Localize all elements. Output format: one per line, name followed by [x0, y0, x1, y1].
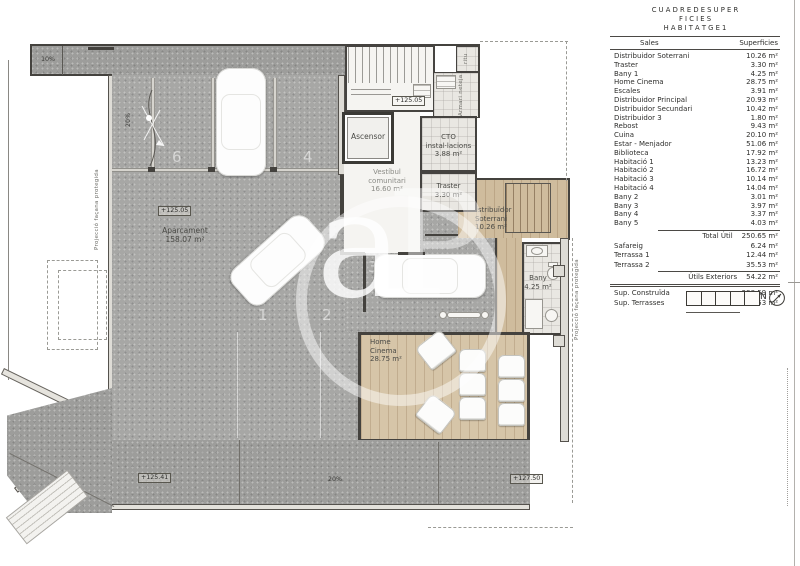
floorplan-sheet: 10% 20% [0, 0, 800, 566]
label-line: 4.25 m² [520, 283, 556, 292]
row-value: 10.42 m² [746, 105, 778, 113]
row-value: 13.23 m² [746, 158, 778, 166]
row-value: 51.06 m² [746, 140, 778, 148]
cinema-chair [459, 397, 486, 420]
slope-label-ramp: 20% [126, 110, 133, 130]
scale-cell [716, 292, 731, 305]
row-label: Bany 4 [614, 210, 638, 218]
bay-line [237, 332, 238, 438]
watermark-logo: aP [292, 170, 492, 390]
table-row: Distribuidor Secundari 10.42 m² [610, 105, 780, 114]
table-row: Bany 5 4.03 m² [610, 219, 780, 228]
total-value: 250.65 m² [742, 232, 778, 242]
projection-line [480, 41, 568, 42]
wall [478, 44, 480, 118]
row-value: 3.97 m² [751, 202, 778, 210]
row-value: 20.10 m² [746, 131, 778, 139]
terrace-marker [553, 335, 565, 347]
slope-label-entry: 10% [36, 56, 60, 63]
label-line: Projecció façana [574, 290, 580, 340]
driveway-entry [30, 46, 345, 75]
row-label: Habitació 4 [614, 184, 654, 192]
divider [610, 284, 780, 285]
label-line: Bany [520, 274, 556, 283]
table-row: Habitació 4 14.04 m² [610, 184, 780, 193]
car-space5 [216, 68, 266, 176]
row-value: 3.01 m² [751, 193, 778, 201]
label-line: 158.07 m² [148, 235, 222, 244]
row-value: 20.93 m² [746, 96, 778, 104]
level-marker-parking: +125.05 [158, 206, 191, 216]
row-value: 3.37 m² [751, 210, 778, 218]
label-line: 3.88 m² [422, 150, 475, 159]
fine-print-microtext [787, 368, 789, 506]
table-title: F I C I E S [610, 15, 780, 24]
level-marker-terrace-high: +127.50 [510, 474, 543, 484]
shower-drain [545, 309, 558, 322]
terrace-edge [48, 504, 530, 510]
space-number: 4 [303, 148, 313, 166]
divider [686, 312, 740, 313]
table-row: Cuina 20.10 m² [610, 131, 780, 140]
row-value: 3.91 m² [751, 87, 778, 95]
exterior-rows: Safareig 6.24 m² Terrassa 1 12.44 m² Ter… [610, 242, 780, 271]
row-label: Bany 1 [614, 70, 638, 78]
total-util-row: Total Útil 250.65 m² [610, 231, 780, 242]
space-number: 6 [172, 148, 182, 166]
label-line: CTO [422, 133, 475, 142]
row-value: 10.26 m² [746, 52, 778, 60]
row-label: Distribuidor 3 [614, 114, 662, 122]
row-label: Estar - Menjador [614, 140, 672, 148]
row-value: 17.92 m² [746, 149, 778, 157]
stairs-treads [348, 47, 432, 83]
row-value: 10.14 m² [746, 175, 778, 183]
sheet-edge-tick [788, 282, 800, 283]
scale-bar [686, 291, 760, 306]
scale-cell [745, 292, 759, 305]
table-row: Habitació 1 13.23 m² [610, 158, 780, 167]
label-projeccio-right: Projecció façana protegida [574, 268, 581, 340]
table-row: Bany 3 3.97 m² [610, 202, 780, 211]
table-title: C U A D R E D E S U P E R [610, 6, 780, 15]
row-label: Biblioteca [614, 149, 649, 157]
row-value: 3.30 m² [751, 61, 778, 69]
total-value: 54.22 m² [746, 273, 778, 283]
row-value: 14.04 m² [746, 184, 778, 192]
table-row: Terrassa 1 12.44 m² [610, 251, 780, 261]
row-label: Habitació 1 [614, 158, 654, 166]
watermark-letter-p: P [386, 159, 468, 331]
total-label: Total Útil [702, 232, 732, 242]
garage-gate [88, 47, 114, 50]
row-value: 4.03 m² [751, 219, 778, 227]
projection-line [428, 527, 573, 528]
table-row: Biblioteca 17.92 m² [610, 149, 780, 158]
table-row: Distribuidor Soterrani 10.26 m² [610, 52, 780, 61]
level-marker-stairs: +125.05 [392, 96, 425, 106]
car-roof [221, 94, 261, 150]
cinema-chair [498, 403, 525, 426]
level-marker-terrace-low: +125.41 [138, 473, 171, 483]
row-label: Cuina [614, 131, 634, 139]
label-line: neteja [458, 75, 464, 94]
row-value: 1.80 m² [751, 114, 778, 122]
table-row: Habitació 3 10.14 m² [610, 175, 780, 184]
scale-cell [702, 292, 717, 305]
label-projeccio-left: Projecció façana protegida [94, 188, 101, 250]
wall [568, 178, 570, 240]
column-header-sales: Sales [640, 39, 659, 47]
terrace-seam [239, 440, 240, 506]
table-row: Bany 2 3.01 m² [610, 193, 780, 202]
scale-cell [687, 292, 702, 305]
row-label: Bany 5 [614, 219, 638, 227]
space-divider [211, 78, 215, 168]
table-row: Distribuidor 3 1.80 m² [610, 114, 780, 123]
table-row: Safareig 6.24 m² [610, 242, 780, 252]
watermark-letter-a: a [316, 159, 386, 331]
label-bany: Bany 4.25 m² [520, 274, 556, 291]
stair-handrail [351, 94, 391, 95]
scale-cell [731, 292, 746, 305]
row-value: 35.53 m² [746, 261, 778, 269]
row-label: Distribuidor Soterrani [614, 52, 689, 60]
label-ascensor: Ascensor [344, 133, 392, 142]
table-row: Escales 3.91 m² [610, 87, 780, 96]
terrace-seam [438, 442, 439, 504]
row-value: 16.72 m² [746, 166, 778, 174]
armari-shelves [436, 75, 456, 89]
projection-line [566, 41, 567, 181]
row-value: 9.43 m² [751, 122, 778, 130]
row-value: 6.24 m² [751, 242, 778, 250]
stair-handrail [351, 89, 391, 90]
cinema-chair [498, 379, 525, 402]
surface-table: C U A D R E D E S U P E R F I C I E S H … [610, 6, 780, 309]
row-label: Habitació 3 [614, 175, 654, 183]
table-rows: Distribuidor Soterrani 10.26 m² Traster … [610, 52, 780, 228]
row-label: Sup. Terrasses [614, 299, 664, 307]
table-row: Home Cinema 28.75 m² [610, 78, 780, 87]
label-line: Aparcament [148, 226, 222, 235]
ramp-curve-arrow [136, 88, 170, 170]
row-label: Bany 2 [614, 193, 638, 201]
label-armari: Armari neteja [458, 76, 465, 116]
property-line [8, 60, 9, 380]
projection-box-left [58, 270, 107, 340]
wall [62, 46, 63, 75]
table-row: Distribuidor Principal 20.93 m² [610, 96, 780, 105]
divider [610, 49, 780, 50]
row-value: 4.25 m² [751, 70, 778, 78]
label-line: Armari [458, 96, 464, 116]
sheet-edge-line [794, 0, 795, 566]
washer [525, 299, 543, 329]
row-label: Traster [614, 61, 638, 69]
table-row: Bany 4 3.37 m² [610, 210, 780, 219]
row-label: Distribuidor Secundari [614, 105, 692, 113]
label-ritu: ritu [463, 50, 470, 68]
terrace-marker [553, 265, 565, 277]
table-row: Bany 1 4.25 m² [610, 70, 780, 79]
row-value: 12.44 m² [746, 251, 778, 259]
row-label: Escales [614, 87, 640, 95]
utils-exteriors-row: Útils Exteriors 54.22 m² [610, 272, 780, 283]
row-label: Terrassa 2 [614, 261, 650, 269]
table-row: Traster 3.30 m² [610, 61, 780, 70]
table-header: Sales Superficies [610, 37, 780, 49]
row-label: Rebost [614, 122, 638, 130]
table-row: Terrassa 2 35.53 m² [610, 261, 780, 271]
row-label: Sup. Construïda [614, 289, 670, 297]
north-label: N [760, 292, 767, 302]
north-compass-icon [768, 289, 786, 307]
row-label: Home Cinema [614, 78, 664, 86]
row-label: Distribuidor Principal [614, 96, 687, 104]
row-label: Safareig [614, 242, 643, 250]
wall [30, 46, 32, 75]
table-row: Habitació 2 16.72 m² [610, 166, 780, 175]
table-row: Rebost 9.43 m² [610, 122, 780, 131]
column-header-superficies: Superficies [739, 39, 778, 47]
label-line: Projecció façana [94, 200, 100, 250]
bathroom-sink [531, 247, 543, 255]
row-label: Habitació 2 [614, 166, 654, 174]
label-aparcament: Aparcament 158.07 m² [148, 226, 222, 244]
space-number: 1 [258, 306, 268, 324]
label-line: instal·lacions [422, 142, 475, 151]
total-label: Útils Exteriors [688, 273, 737, 283]
label-cto: CTO instal·lacions 3.88 m² [422, 133, 475, 159]
cinema-chair [498, 355, 525, 378]
slope-label-driveway: 20% [328, 476, 342, 483]
space-divider [273, 78, 277, 168]
row-label: Terrassa 1 [614, 251, 650, 259]
table-row: Estar - Menjador 51.06 m² [610, 140, 780, 149]
table-title: H A B I T A T G E 1 [610, 24, 780, 33]
label-line: protegida [94, 169, 100, 198]
label-line: protegida [574, 259, 580, 288]
row-label: Bany 3 [614, 202, 638, 210]
divider [610, 286, 780, 287]
row-value: 28.75 m² [746, 78, 778, 86]
wall [30, 74, 112, 76]
